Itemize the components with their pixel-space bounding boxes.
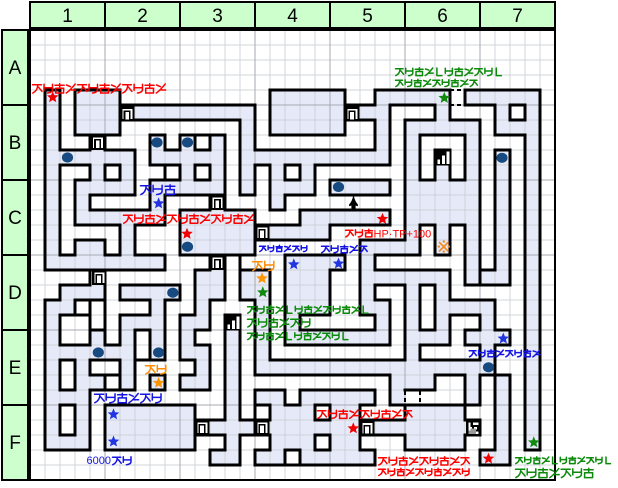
svg-text:6000: 6000 — [87, 455, 111, 467]
svg-text:D: D — [8, 283, 22, 304]
svg-text:3: 3 — [212, 6, 223, 27]
svg-text:1: 1 — [62, 6, 73, 27]
svg-text:C: C — [8, 208, 22, 229]
svg-text:F: F — [9, 433, 21, 454]
svg-text:HP·TP+100: HP·TP+100 — [374, 229, 432, 241]
svg-text:2: 2 — [137, 6, 148, 27]
svg-text:7: 7 — [512, 6, 523, 27]
svg-text:4: 4 — [287, 6, 298, 27]
svg-text:A: A — [9, 58, 22, 79]
svg-text:6: 6 — [437, 6, 448, 27]
svg-text:E: E — [9, 358, 22, 379]
svg-text:B: B — [9, 133, 22, 154]
svg-text:5: 5 — [362, 6, 373, 27]
